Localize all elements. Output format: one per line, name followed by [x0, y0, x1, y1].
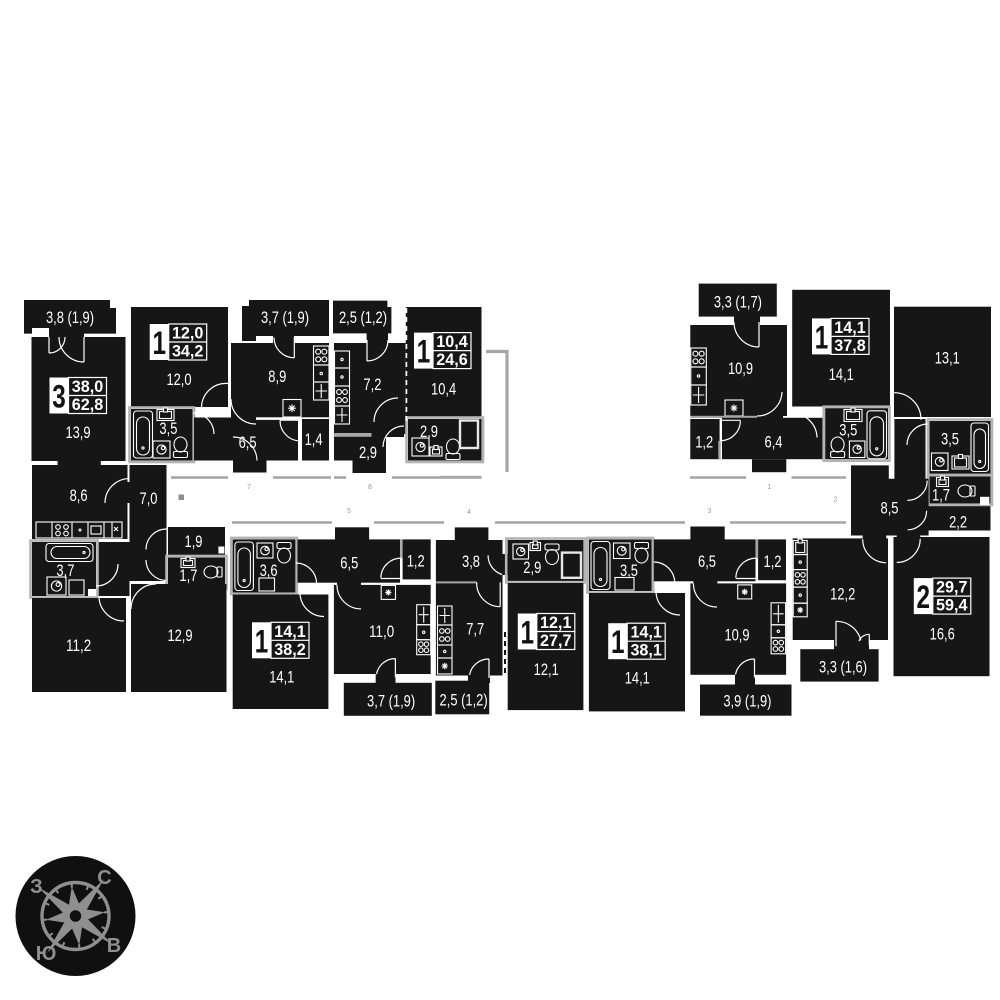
- svg-text:1,2: 1,2: [695, 433, 713, 452]
- svg-text:24,6: 24,6: [436, 351, 468, 369]
- svg-text:4: 4: [467, 509, 471, 516]
- svg-text:2,2: 2,2: [949, 513, 967, 532]
- svg-text:С: С: [97, 867, 111, 889]
- svg-text:7,2: 7,2: [363, 375, 381, 394]
- svg-text:62,8: 62,8: [72, 396, 104, 414]
- svg-text:3: 3: [52, 379, 66, 415]
- svg-text:3: 3: [708, 508, 712, 515]
- svg-text:14,1: 14,1: [829, 365, 854, 384]
- svg-text:1: 1: [611, 624, 625, 660]
- svg-text:38,0: 38,0: [72, 378, 104, 396]
- svg-text:1,9: 1,9: [185, 532, 203, 551]
- svg-text:1: 1: [152, 325, 166, 361]
- svg-text:14,1: 14,1: [269, 668, 294, 687]
- svg-text:29,7: 29,7: [936, 579, 968, 597]
- svg-text:3,7 (1,9): 3,7 (1,9): [367, 692, 415, 711]
- svg-text:14,1: 14,1: [630, 624, 662, 642]
- svg-text:6,5: 6,5: [698, 552, 716, 571]
- svg-text:З: З: [30, 876, 43, 898]
- svg-text:7,0: 7,0: [140, 489, 158, 508]
- svg-text:3,8: 3,8: [462, 552, 480, 571]
- svg-text:11,0: 11,0: [369, 622, 394, 641]
- svg-text:3,5: 3,5: [159, 419, 177, 438]
- svg-text:1,2: 1,2: [407, 552, 425, 571]
- svg-text:14,1: 14,1: [834, 319, 866, 337]
- svg-text:8: 8: [368, 484, 372, 491]
- svg-text:10,9: 10,9: [724, 626, 749, 645]
- svg-text:2: 2: [917, 579, 931, 615]
- svg-text:12,9: 12,9: [167, 626, 192, 645]
- svg-text:2,9: 2,9: [359, 443, 377, 462]
- svg-text:1: 1: [768, 484, 772, 491]
- svg-text:6,5: 6,5: [340, 554, 358, 573]
- svg-text:Ю: Ю: [36, 943, 57, 965]
- svg-text:3,6: 3,6: [260, 561, 278, 580]
- svg-text:7,7: 7,7: [466, 620, 484, 639]
- svg-text:1,4: 1,4: [305, 430, 323, 449]
- svg-text:8,9: 8,9: [268, 367, 286, 386]
- svg-text:27,7: 27,7: [540, 632, 572, 650]
- svg-text:1: 1: [815, 319, 829, 355]
- svg-text:12,1: 12,1: [540, 614, 572, 632]
- svg-text:3,8 (1,9): 3,8 (1,9): [46, 308, 94, 327]
- svg-text:10,4: 10,4: [431, 380, 456, 399]
- svg-text:12,0: 12,0: [166, 370, 191, 389]
- svg-text:2,5 (1,2): 2,5 (1,2): [440, 691, 488, 710]
- svg-text:3,5: 3,5: [839, 421, 857, 440]
- svg-text:7: 7: [247, 484, 251, 491]
- svg-text:12,2: 12,2: [830, 585, 855, 604]
- svg-text:5: 5: [347, 508, 351, 515]
- svg-text:8,5: 8,5: [881, 499, 899, 518]
- svg-text:13,9: 13,9: [65, 423, 90, 442]
- svg-text:12,1: 12,1: [534, 660, 559, 679]
- svg-text:13,1: 13,1: [935, 349, 960, 368]
- svg-text:2: 2: [834, 497, 838, 504]
- svg-text:38,1: 38,1: [630, 642, 662, 660]
- svg-text:2,9: 2,9: [523, 558, 541, 577]
- svg-text:1,2: 1,2: [764, 552, 782, 571]
- svg-text:1,7: 1,7: [932, 486, 950, 505]
- svg-text:14,1: 14,1: [625, 669, 650, 688]
- svg-text:59,4: 59,4: [936, 597, 968, 615]
- svg-text:1,7: 1,7: [179, 566, 197, 585]
- svg-text:1: 1: [521, 615, 535, 651]
- svg-text:16,6: 16,6: [930, 625, 955, 644]
- svg-text:8,6: 8,6: [70, 486, 88, 505]
- svg-text:37,8: 37,8: [834, 337, 866, 355]
- svg-text:3,7 (1,9): 3,7 (1,9): [261, 308, 309, 327]
- svg-text:10,9: 10,9: [728, 359, 753, 378]
- svg-text:38,2: 38,2: [274, 641, 306, 659]
- svg-text:11,2: 11,2: [66, 636, 91, 655]
- svg-text:3,9 (1,9): 3,9 (1,9): [723, 692, 771, 711]
- svg-text:6,4: 6,4: [765, 433, 783, 452]
- svg-text:2,5 (1,2): 2,5 (1,2): [339, 308, 387, 327]
- svg-text:34,2: 34,2: [172, 343, 204, 361]
- svg-text:В: В: [107, 935, 121, 957]
- svg-text:3,3 (1,6): 3,3 (1,6): [819, 658, 867, 677]
- svg-text:1: 1: [417, 334, 431, 370]
- svg-text:10,4: 10,4: [436, 333, 468, 351]
- svg-text:3,5: 3,5: [941, 430, 959, 449]
- svg-text:12,0: 12,0: [172, 325, 204, 343]
- svg-text:3,3 (1,7): 3,3 (1,7): [714, 293, 762, 312]
- svg-text:1: 1: [255, 623, 269, 659]
- svg-text:14,1: 14,1: [274, 623, 306, 641]
